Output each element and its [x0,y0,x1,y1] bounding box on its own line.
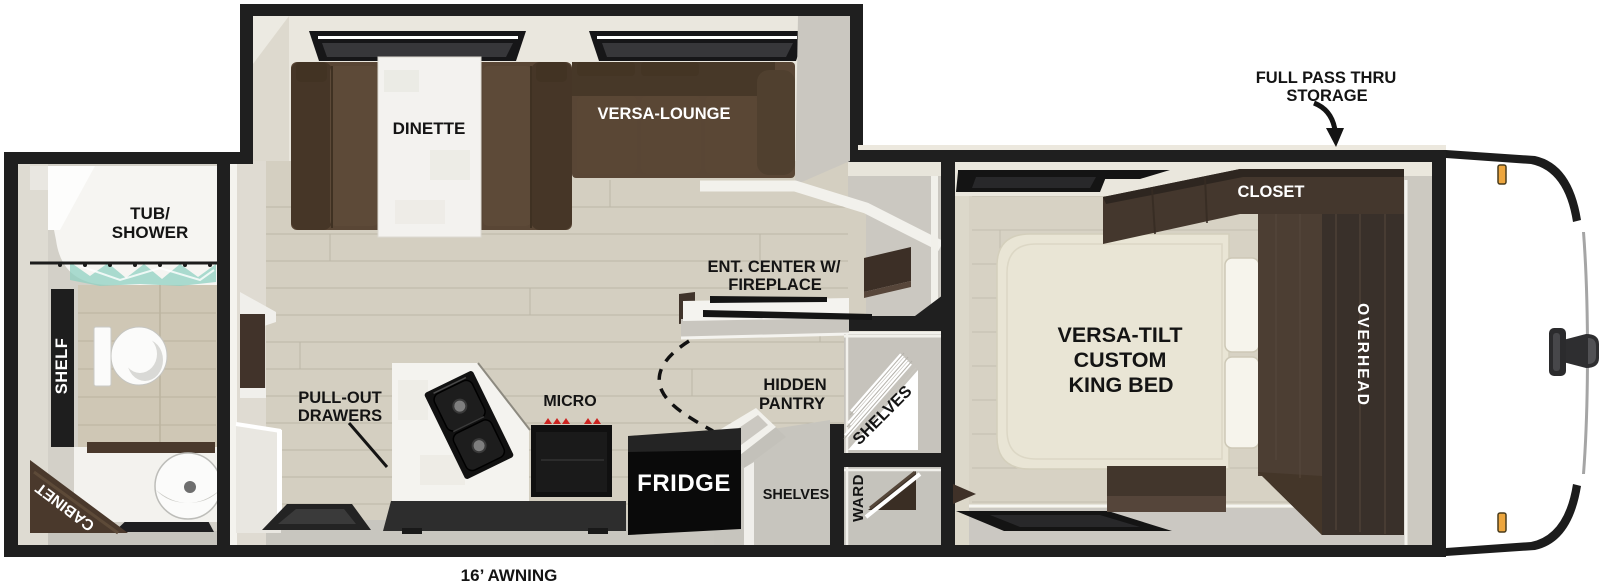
svg-text:MICRO: MICRO [543,393,596,410]
svg-text:ENT. CENTER W/: ENT. CENTER W/ [708,258,841,276]
svg-text:FRIDGE: FRIDGE [637,470,731,497]
svg-text:CLOSET: CLOSET [1238,183,1305,201]
svg-text:VERSA-TILT: VERSA-TILT [1057,323,1182,347]
svg-text:FULL PASS THRU: FULL PASS THRU [1256,69,1397,87]
svg-text:DRAWERS: DRAWERS [298,407,382,425]
svg-text:STORAGE: STORAGE [1286,87,1367,105]
svg-text:SHELVES: SHELVES [763,487,830,503]
svg-text:WARD: WARD [850,474,867,522]
svg-text:VERSA-LOUNGE: VERSA-LOUNGE [598,105,731,123]
svg-text:KING BED: KING BED [1068,373,1173,397]
svg-text:SHOWER: SHOWER [112,223,189,242]
svg-text:SHELF: SHELF [53,338,71,395]
svg-text:PANTRY: PANTRY [759,395,825,413]
svg-text:TUB/: TUB/ [130,204,170,223]
svg-text:CUSTOM: CUSTOM [1074,348,1167,372]
svg-text:16’ AWNING: 16’ AWNING [461,566,558,582]
svg-text:OVERHEAD: OVERHEAD [1354,303,1371,407]
svg-text:FIREPLACE: FIREPLACE [728,276,822,294]
svg-text:HIDDEN: HIDDEN [763,376,826,394]
svg-text:PULL-OUT: PULL-OUT [298,389,381,407]
svg-text:DINETTE: DINETTE [393,119,466,138]
